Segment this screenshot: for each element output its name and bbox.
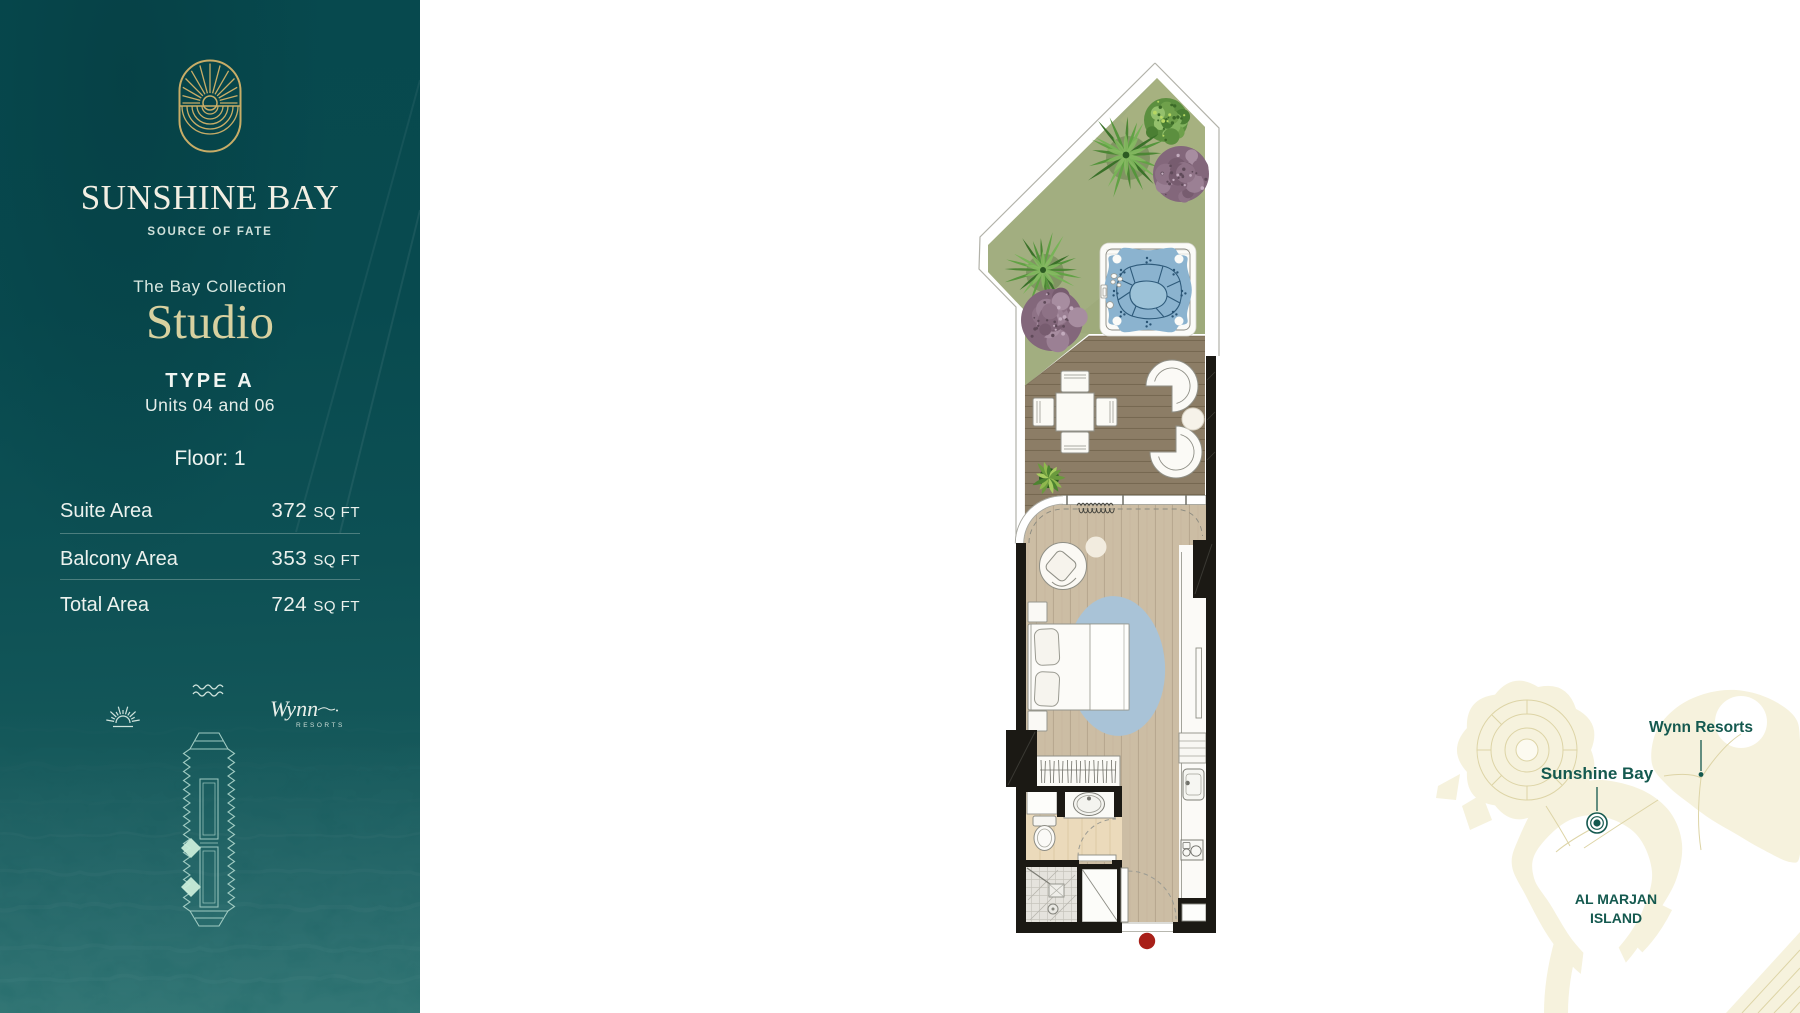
- svg-text:Sunshine Bay: Sunshine Bay: [1541, 764, 1654, 783]
- svg-text:ISLAND: ISLAND: [1590, 910, 1642, 926]
- svg-text:Wynn: Wynn: [270, 696, 318, 721]
- svg-text:Wynn Resorts: Wynn Resorts: [1649, 719, 1753, 736]
- svg-text:AL MARJAN: AL MARJAN: [1575, 891, 1657, 907]
- svg-text:RESORTS: RESORTS: [296, 722, 345, 729]
